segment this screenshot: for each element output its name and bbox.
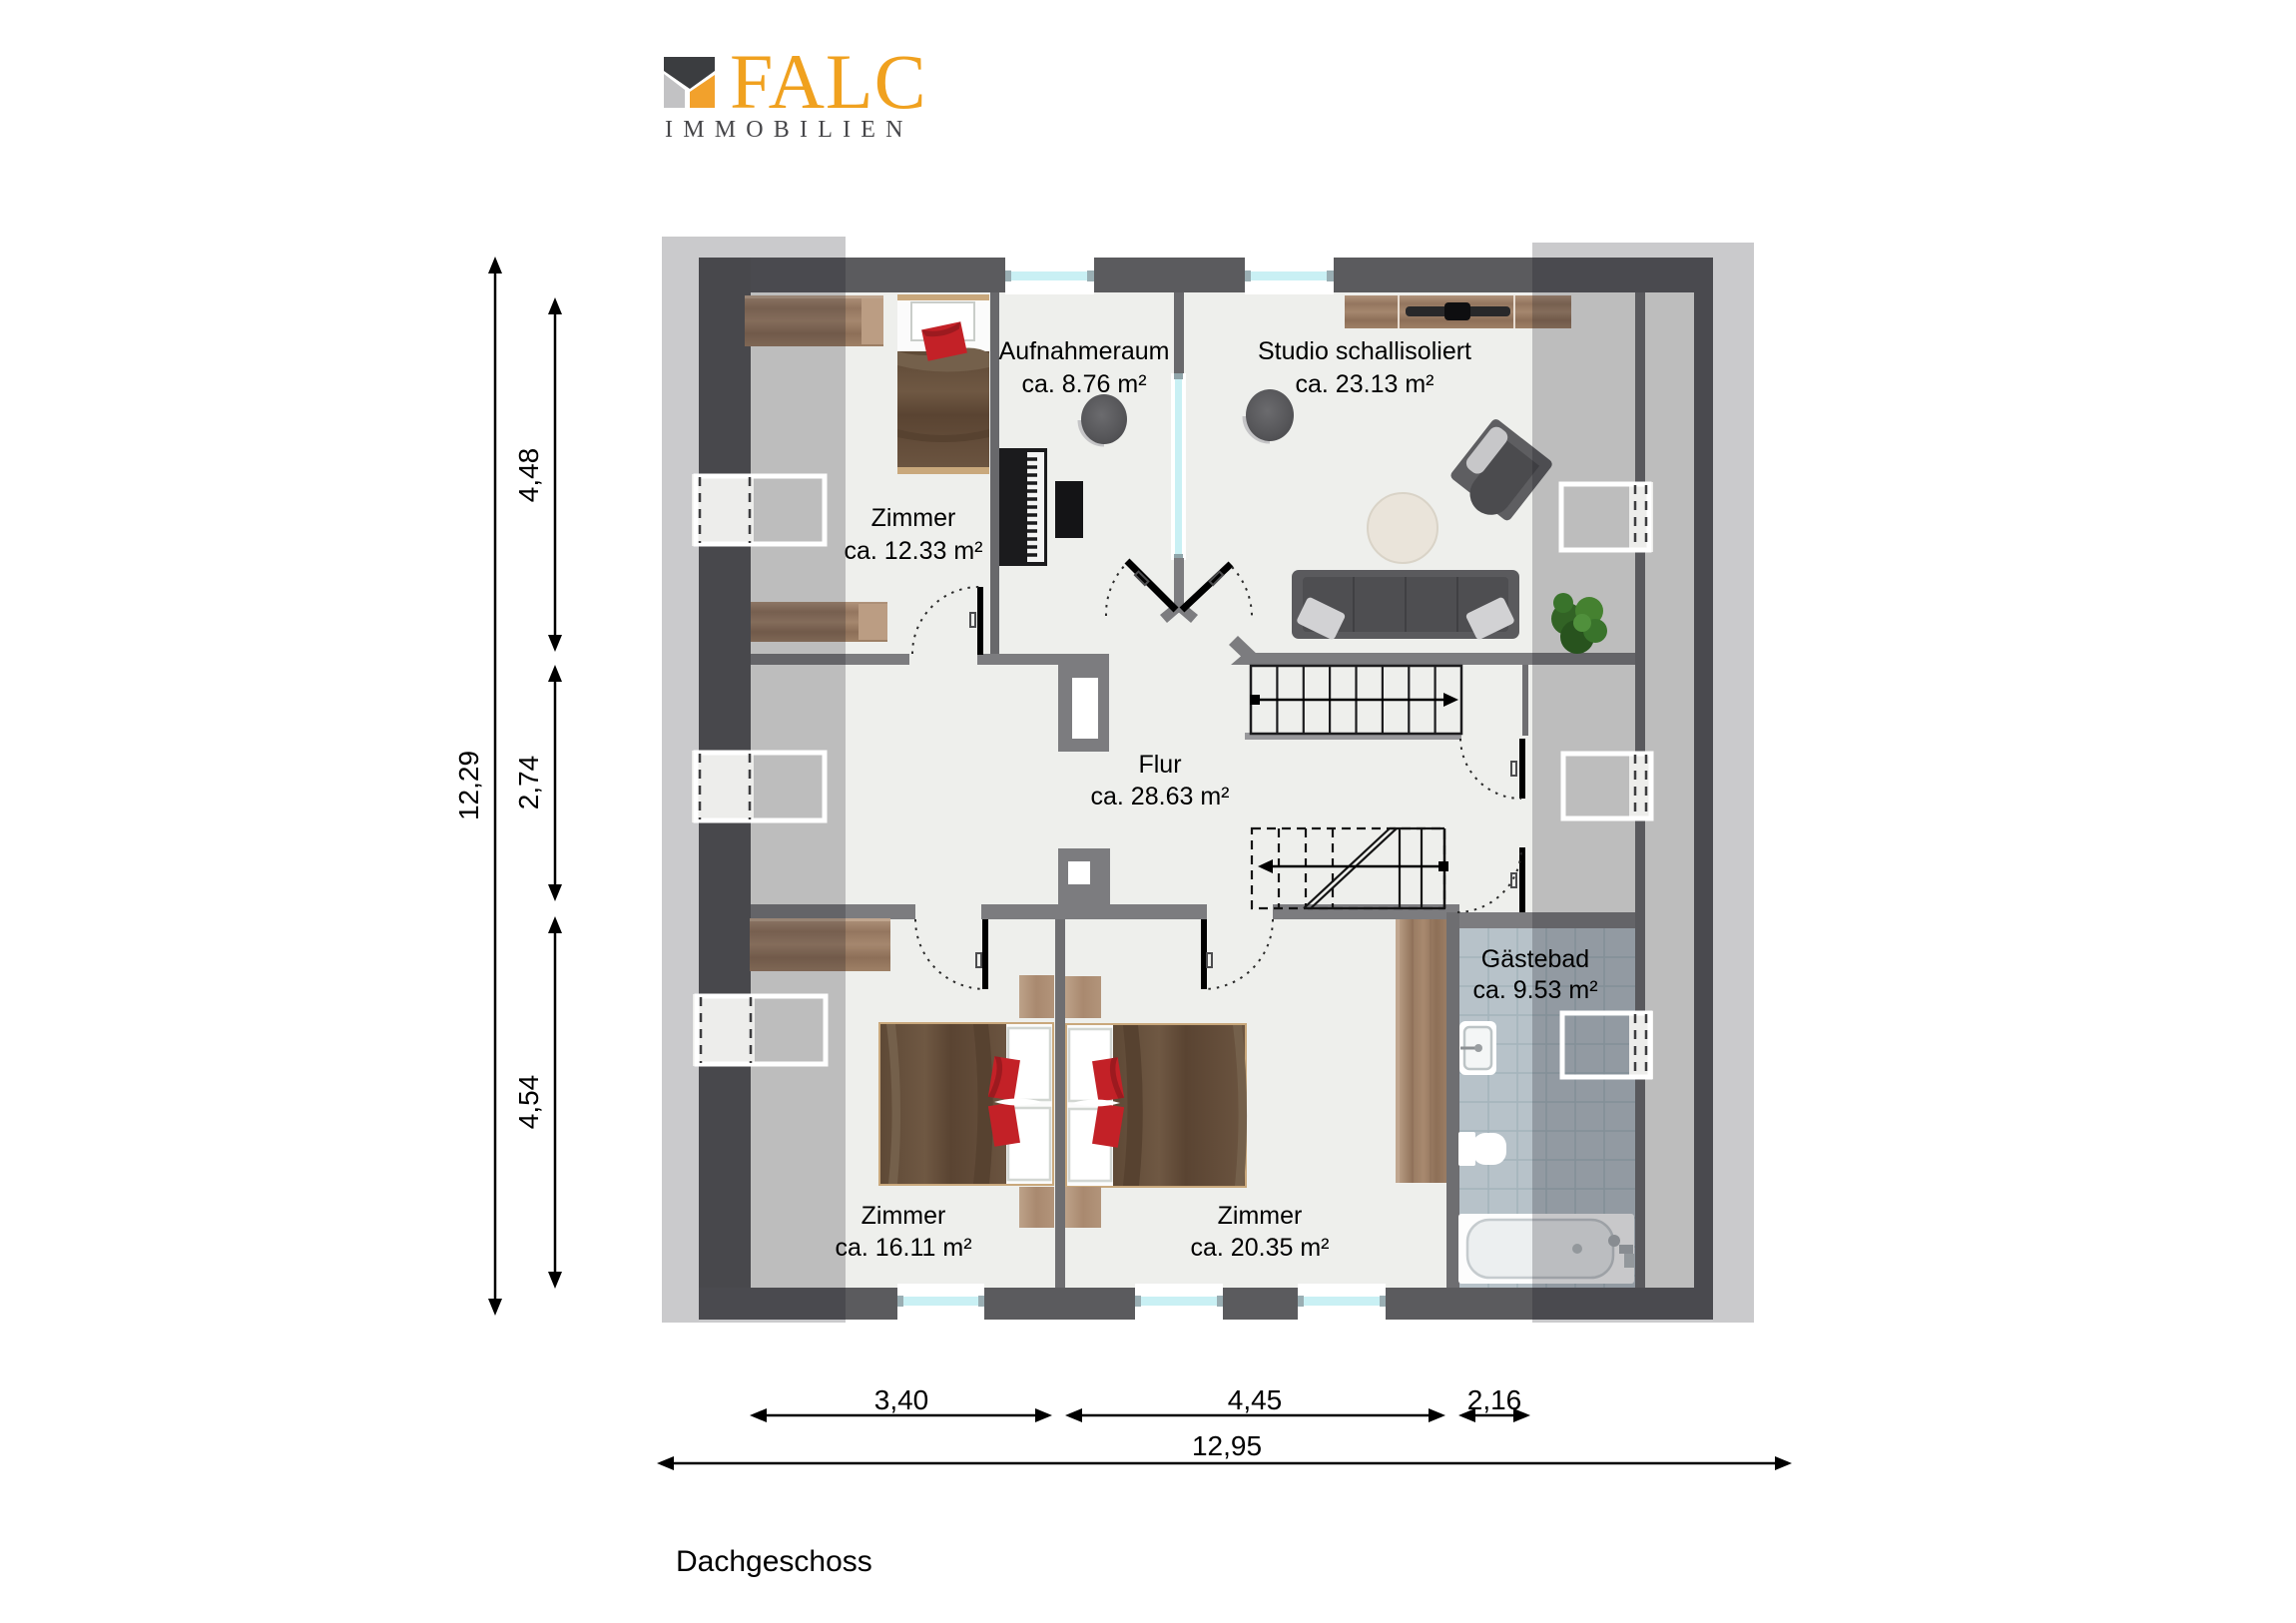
svg-text:4,48: 4,48: [513, 448, 544, 503]
svg-text:ca. 12.33 m²: ca. 12.33 m²: [845, 537, 983, 565]
svg-text:IMMOBILIEN: IMMOBILIEN: [665, 117, 913, 143]
svg-text:ca. 9.53 m²: ca. 9.53 m²: [1472, 976, 1597, 1004]
svg-text:Aufnahmeraum: Aufnahmeraum: [999, 337, 1170, 365]
svg-text:4,45: 4,45: [1228, 1384, 1283, 1415]
svg-text:12,95: 12,95: [1192, 1430, 1262, 1461]
svg-text:2,16: 2,16: [1467, 1384, 1522, 1415]
svg-text:Zimmer: Zimmer: [1218, 1202, 1303, 1230]
svg-text:Zimmer: Zimmer: [871, 504, 956, 532]
svg-text:Dachgeschoss: Dachgeschoss: [676, 1545, 872, 1578]
svg-text:ca. 28.63 m²: ca. 28.63 m²: [1091, 783, 1230, 811]
svg-text:ca. 20.35 m²: ca. 20.35 m²: [1191, 1234, 1330, 1262]
svg-text:4,54: 4,54: [513, 1075, 544, 1130]
svg-text:Studio schallisoliert: Studio schallisoliert: [1258, 337, 1471, 365]
svg-text:3,40: 3,40: [874, 1384, 929, 1415]
svg-text:FALC: FALC: [730, 38, 927, 125]
svg-text:ca. 16.11 m²: ca. 16.11 m²: [835, 1234, 971, 1262]
svg-text:ca. 8.76 m²: ca. 8.76 m²: [1021, 370, 1146, 398]
svg-text:2,74: 2,74: [513, 756, 544, 811]
svg-text:ca. 23.13 m²: ca. 23.13 m²: [1296, 370, 1435, 398]
svg-text:Gästebad: Gästebad: [1481, 945, 1589, 973]
svg-text:Zimmer: Zimmer: [861, 1202, 946, 1230]
svg-text:12,29: 12,29: [453, 751, 484, 820]
svg-text:Flur: Flur: [1138, 751, 1181, 779]
